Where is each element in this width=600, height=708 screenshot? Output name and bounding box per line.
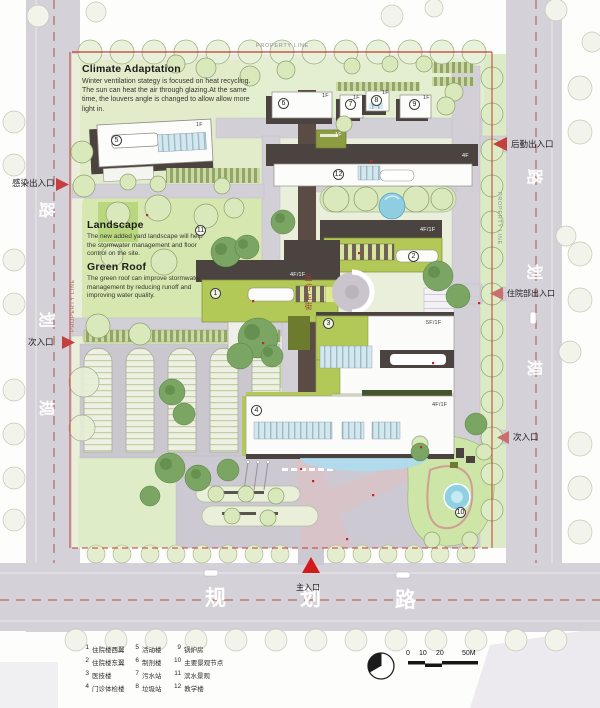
green-roof-body: The green roof can improve stormwater ma… xyxy=(87,275,215,301)
legend-num: 12 xyxy=(174,683,181,693)
floor-label-b7: 1F xyxy=(353,95,360,101)
property-line-label-left: PROPERTY LINE xyxy=(70,279,76,332)
secondary-entrance-left-label: 次入口 xyxy=(28,336,54,348)
road-name-left: 路 xyxy=(36,202,60,218)
infection-entrance-label: 感染出入口 xyxy=(12,177,55,189)
floor-label-b12: 4F xyxy=(462,153,469,159)
legend-num: 9 xyxy=(174,644,181,654)
legend-item: 4门诊体检楼 xyxy=(82,683,125,693)
legend-num: 5 xyxy=(132,644,139,654)
legend-label: 污水站 xyxy=(142,670,162,680)
north-arrow xyxy=(368,653,394,679)
legend-label: 活动楼 xyxy=(142,644,162,654)
legend-num: 7 xyxy=(132,670,139,680)
road-name-right: 划 xyxy=(524,264,548,280)
building-5-number: 5 xyxy=(111,135,122,146)
logistics-entrance-label: 后勤出入口 xyxy=(511,138,554,150)
climate-title: Climate Adaptation xyxy=(82,63,181,75)
building-6-number: 6 xyxy=(278,98,289,109)
site-plan: Climate Adaptation Winter ventilation st… xyxy=(0,0,600,708)
building-1-number: 1 xyxy=(210,288,221,299)
landscape-body: The new added yard landscape will help t… xyxy=(87,233,209,259)
legend-item: 7污水站 xyxy=(132,670,162,680)
legend-item: 11滨水景观 xyxy=(174,670,210,680)
legend-item: 2住院楼东翼 xyxy=(82,657,125,667)
inpatient-entrance-label: 住院部出入口 xyxy=(507,288,555,299)
property-line-label-right: PROPERTY LINE xyxy=(496,192,502,245)
scale-tick-10: 10 xyxy=(419,650,427,657)
legend-item: 10主要景观节点 xyxy=(174,657,223,667)
legend-label: 垃圾站 xyxy=(142,683,162,693)
scale-tick-0: 0 xyxy=(406,650,410,657)
bottom-left-plot xyxy=(0,662,58,708)
climate-body: Winter ventilation stategy is focused on… xyxy=(82,77,262,114)
building-8-number: 8 xyxy=(371,95,382,106)
legend-num: 10 xyxy=(174,657,181,667)
road-name-left: 规 xyxy=(36,400,60,416)
landscape-title: Landscape xyxy=(87,219,144,231)
floor-label-b1: 4F/1F xyxy=(290,272,305,278)
floor-label-b2: 4F/1F xyxy=(420,227,435,233)
road-name-bottom: 规 xyxy=(205,582,226,612)
floor-label-b6: 1F xyxy=(322,93,329,99)
pond xyxy=(379,193,405,219)
medical-street-label: 医疗主街 xyxy=(303,274,314,326)
secondary-entrance-right-label: 次入口 xyxy=(513,431,539,443)
legend-item: 3医技楼 xyxy=(82,670,112,680)
floor-label-b8: 1F xyxy=(382,90,389,96)
property-line-label-top: PROPERTY LINE xyxy=(256,43,309,49)
pergola-row xyxy=(336,82,420,91)
road-name-right: 规 xyxy=(524,360,548,376)
legend-item: 9锅炉房 xyxy=(174,644,204,654)
legend-label: 住院楼西翼 xyxy=(92,644,125,654)
legend-item: 5活动楼 xyxy=(132,644,162,654)
dropoff-canopy xyxy=(332,272,372,312)
main-entrance-label: 主入口 xyxy=(296,582,320,593)
legend-label: 医技楼 xyxy=(92,670,112,680)
legend-num: 4 xyxy=(82,683,89,693)
legend-num: 2 xyxy=(82,657,89,667)
building-3-number: 3 xyxy=(323,318,334,329)
legend-label: 住院楼东翼 xyxy=(92,657,125,667)
building-2-number: 2 xyxy=(408,251,419,262)
building-12-number: 12 xyxy=(333,169,344,180)
scale-tick-50m: 50M xyxy=(462,650,476,657)
legend-item: 12教学楼 xyxy=(174,683,204,693)
legend-label: 制剂楼 xyxy=(142,657,162,667)
legend-label: 滨水景观 xyxy=(184,670,210,680)
floor-label-b4: 4F/1F xyxy=(432,402,447,408)
legend-item: 8垃圾站 xyxy=(132,683,162,693)
road-name-bottom: 路 xyxy=(395,584,416,614)
scale-tick-20: 20 xyxy=(436,650,444,657)
node-11-number: 11 xyxy=(195,225,206,236)
legend-num: 1 xyxy=(82,644,89,654)
legend-num: 6 xyxy=(132,657,139,667)
road-name-right: 路 xyxy=(524,169,548,185)
floor-label-b3: 5F/1F xyxy=(426,320,441,326)
building-9-number: 9 xyxy=(409,99,420,110)
legend-item: 1住院楼西翼 xyxy=(82,644,125,654)
road-name-left: 划 xyxy=(36,312,60,328)
node-10-number: 10 xyxy=(455,507,466,518)
legend-label: 教学楼 xyxy=(184,683,204,693)
floor-label-b5: 1F xyxy=(196,122,203,128)
legend-item: 6制剂楼 xyxy=(132,657,162,667)
building-4-number: 4 xyxy=(251,405,262,416)
floor-label-b9: 1F xyxy=(423,95,430,101)
green-roof-title: Green Roof xyxy=(87,261,146,273)
legend-label: 锅炉房 xyxy=(184,644,204,654)
legend-num: 3 xyxy=(82,670,89,680)
legend-num: 11 xyxy=(174,670,181,680)
legend-label: 主要景观节点 xyxy=(184,657,223,667)
floor-label-b12-wing: 1F xyxy=(335,132,342,138)
legend-num: 8 xyxy=(132,683,139,693)
legend-label: 门诊体检楼 xyxy=(92,683,125,693)
hedge-row xyxy=(166,168,260,183)
